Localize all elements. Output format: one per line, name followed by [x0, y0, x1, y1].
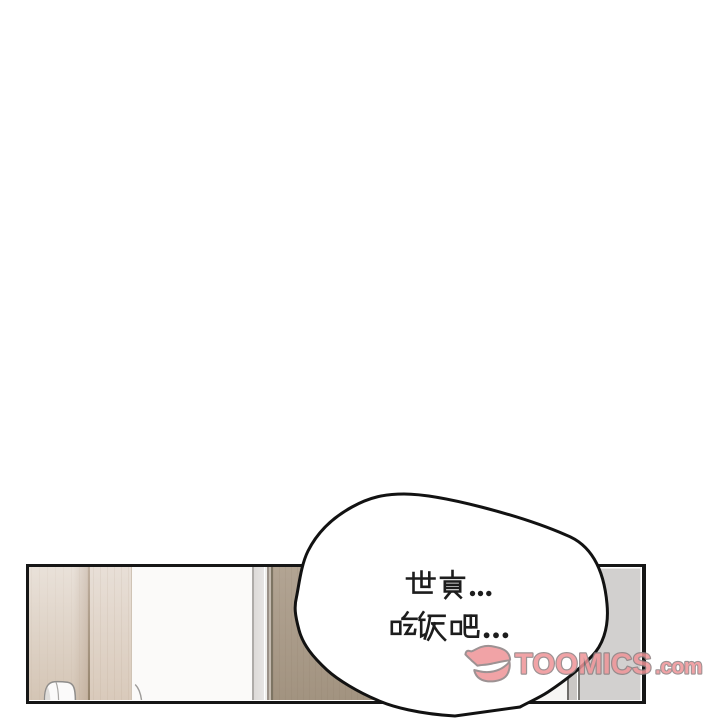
- svg-text:TOOMICS: TOOMICS: [515, 649, 652, 681]
- svg-text:.com: .com: [655, 656, 702, 679]
